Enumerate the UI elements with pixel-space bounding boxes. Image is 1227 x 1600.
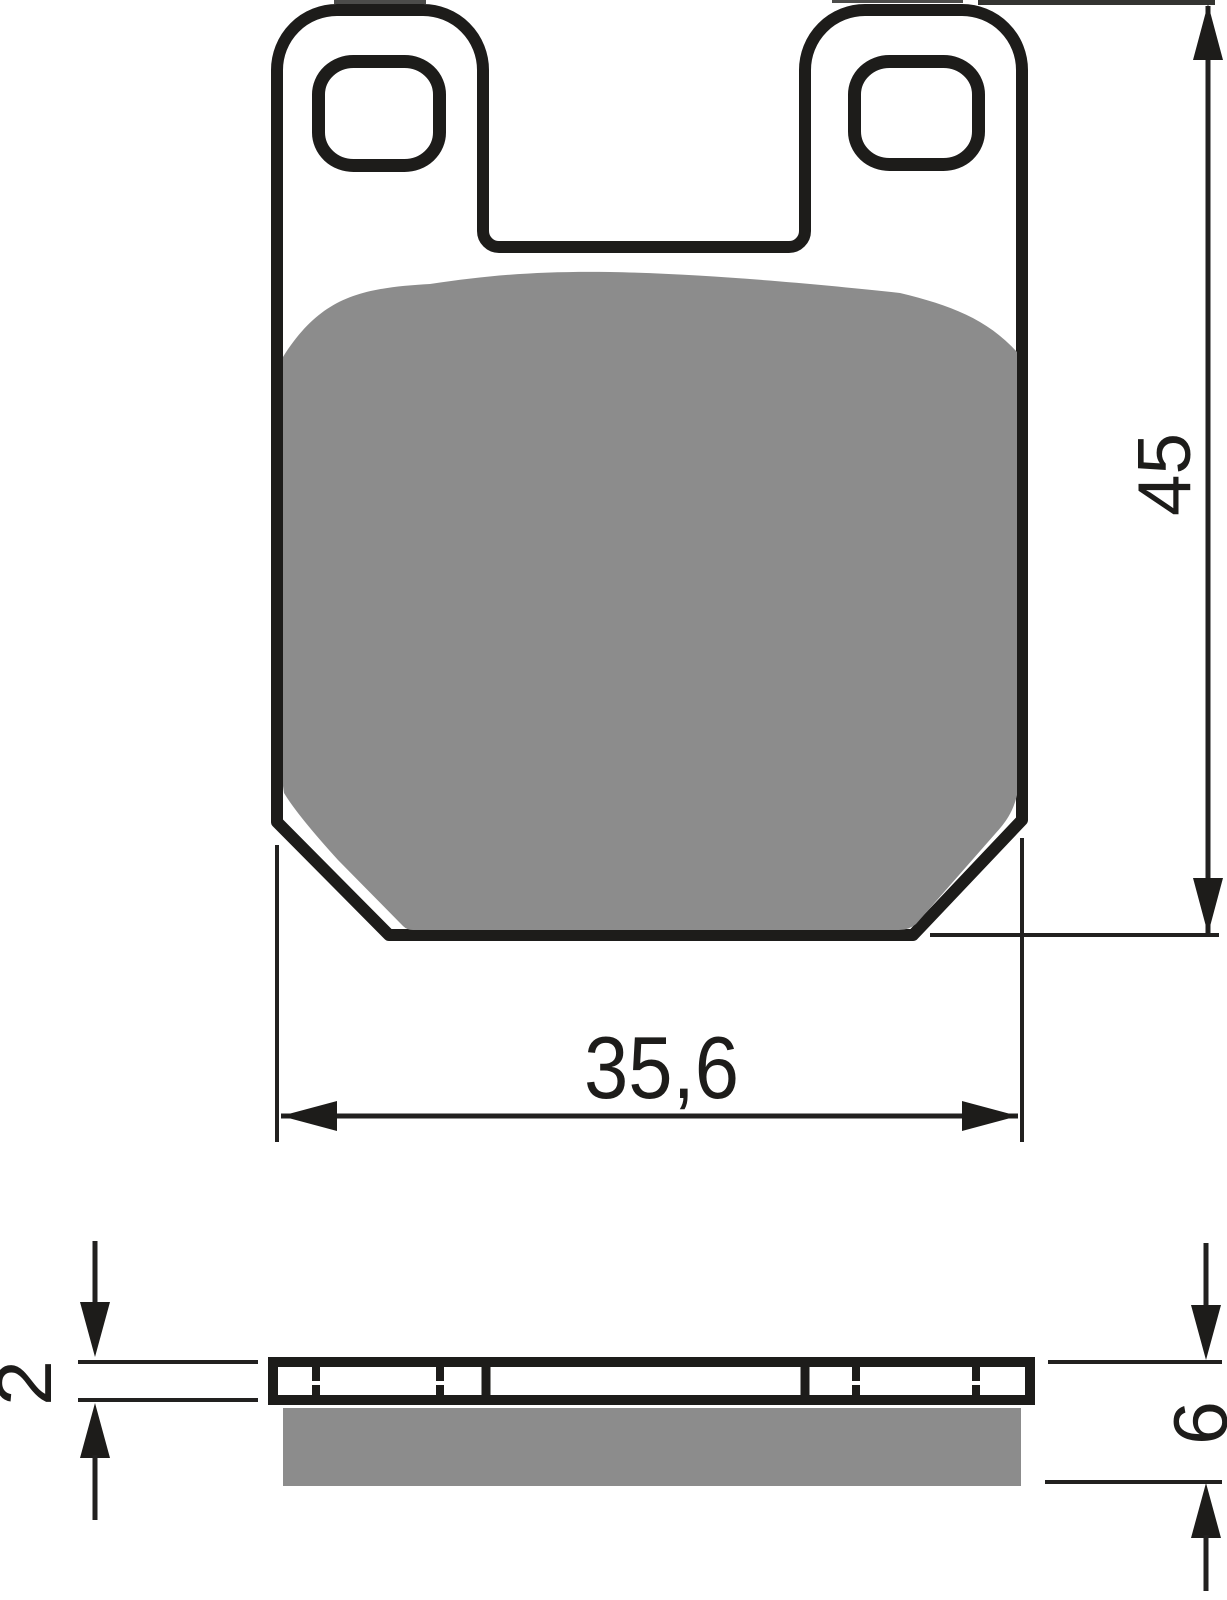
svg-text:2: 2 <box>0 1360 68 1406</box>
svg-text:6: 6 <box>1159 1401 1227 1445</box>
svg-text:45: 45 <box>1122 433 1206 516</box>
svg-text:35,6: 35,6 <box>584 1018 739 1117</box>
